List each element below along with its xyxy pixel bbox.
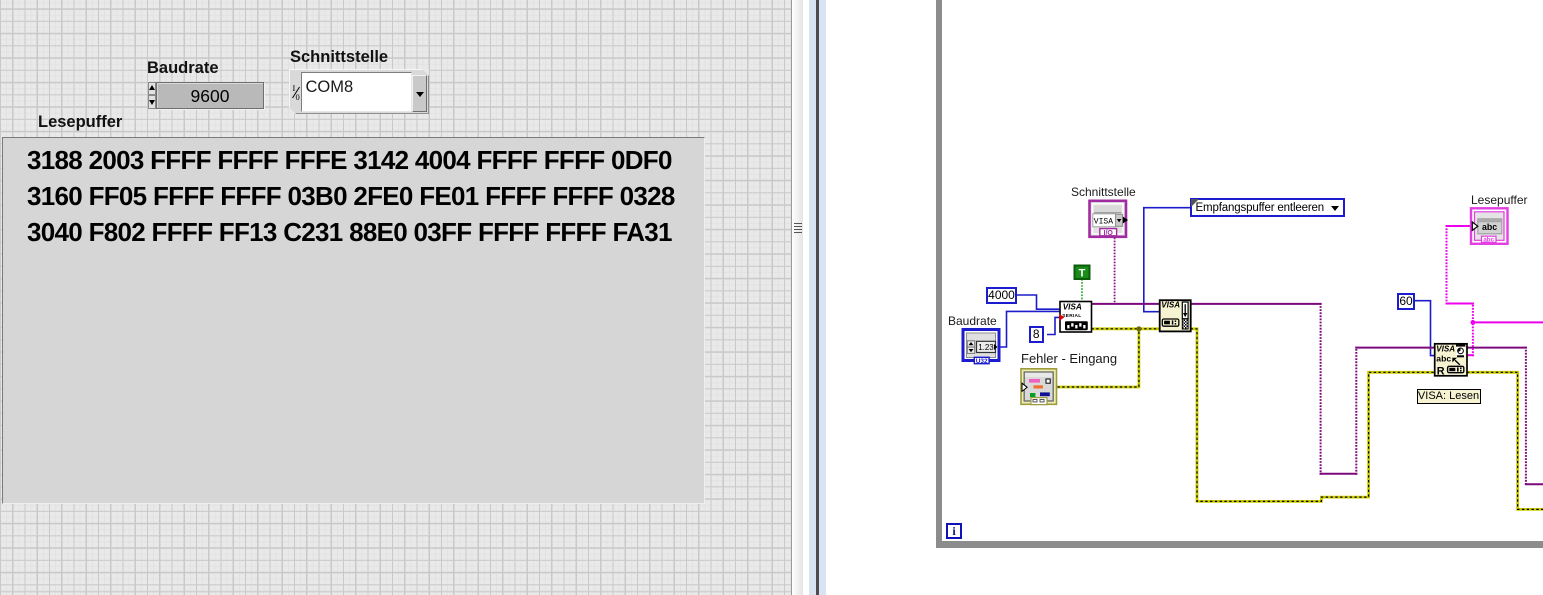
svg-text:R: R <box>1437 365 1445 377</box>
svg-text:abc: abc <box>1483 237 1494 244</box>
svg-text:abc: abc <box>1482 222 1497 232</box>
svg-text:VISA: VISA <box>1063 302 1082 311</box>
svg-text:VISA: VISA <box>1161 301 1180 310</box>
svg-text:U32: U32 <box>976 358 988 365</box>
svg-text:I/O: I/O <box>1104 230 1114 237</box>
svg-text:SERIAL: SERIAL <box>1062 313 1081 319</box>
svg-text:VISA: VISA <box>1436 344 1455 353</box>
svg-text:T: T <box>1079 268 1086 280</box>
svg-text:VISA: VISA <box>1094 217 1113 226</box>
svg-text:1.23: 1.23 <box>978 343 994 352</box>
svg-text:abc: abc <box>1436 354 1451 364</box>
